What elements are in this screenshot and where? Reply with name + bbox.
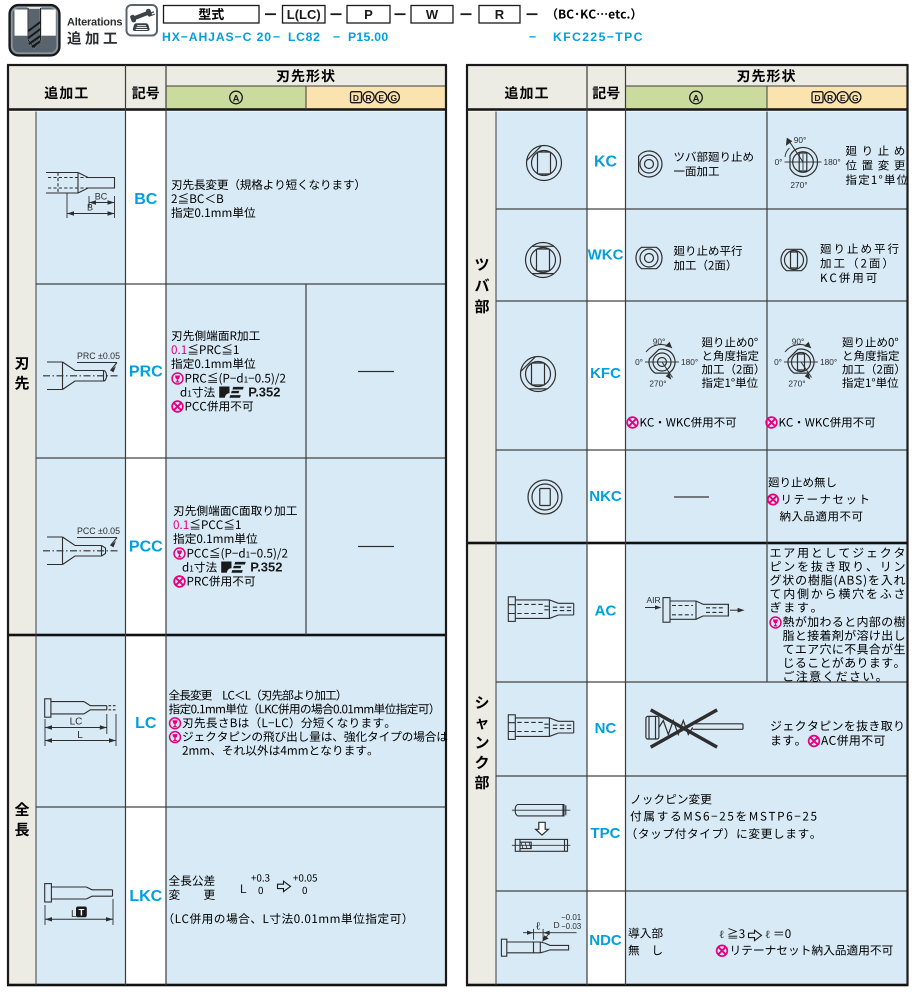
svg-text:P15.00: P15.00	[348, 30, 388, 44]
svg-text:L(LC): L(LC)	[287, 7, 321, 22]
svg-text:T: T	[78, 908, 84, 919]
svg-text:WKC: WKC	[588, 247, 624, 264]
svg-text:Alterations: Alterations	[67, 17, 122, 29]
svg-text:ℓ: ℓ	[719, 929, 724, 941]
svg-text:L: L	[240, 882, 247, 896]
svg-text:PCC ±0.05: PCC ±0.05	[77, 526, 120, 536]
svg-text:LKC: LKC	[129, 888, 162, 905]
svg-text:270°: 270°	[649, 379, 666, 389]
svg-text:AC: AC	[595, 603, 617, 620]
svg-text:G: G	[390, 93, 397, 103]
svg-text:KFC: KFC	[590, 365, 621, 382]
svg-text:A: A	[233, 94, 240, 105]
svg-text:BC: BC	[134, 191, 158, 208]
svg-text:PRC ±0.05: PRC ±0.05	[77, 351, 120, 361]
svg-text:G: G	[852, 93, 859, 103]
svg-text:W: W	[426, 7, 439, 22]
svg-text:LC: LC	[135, 715, 157, 732]
svg-text:BC: BC	[95, 192, 108, 202]
svg-text:PRC: PRC	[129, 364, 163, 381]
svg-text:R: R	[495, 7, 505, 22]
svg-text:KC: KC	[594, 154, 618, 171]
svg-text:R: R	[366, 93, 372, 103]
svg-text:−: −	[529, 30, 536, 44]
svg-text:LC82: LC82	[288, 30, 321, 44]
svg-text:E: E	[378, 93, 384, 103]
svg-text:A: A	[693, 94, 700, 105]
svg-text:P.352: P.352	[248, 385, 280, 400]
svg-text:HX−AHJAS−C 20: HX−AHJAS−C 20	[162, 30, 272, 44]
svg-text:R: R	[827, 93, 833, 103]
svg-text:−: −	[333, 30, 340, 44]
svg-text:E: E	[840, 93, 846, 103]
svg-text:D: D	[814, 93, 820, 103]
svg-text:180°: 180°	[824, 157, 841, 167]
svg-text:180°: 180°	[820, 357, 837, 367]
svg-text:−0.01: −0.01	[561, 913, 582, 922]
svg-text:KFC225−TPC: KFC225−TPC	[553, 30, 644, 44]
svg-text:P: P	[364, 7, 373, 22]
svg-text:AIR: AIR	[647, 595, 661, 605]
svg-text:ℓ: ℓ	[535, 921, 540, 933]
svg-text:TPC: TPC	[591, 825, 621, 842]
svg-text:LC: LC	[70, 717, 83, 728]
svg-text:ℓ: ℓ	[765, 929, 770, 941]
svg-text:D: D	[554, 920, 560, 930]
svg-text:D: D	[353, 93, 359, 103]
svg-text:PCC: PCC	[129, 539, 163, 556]
svg-text:180°: 180°	[681, 357, 698, 367]
svg-text:0°: 0°	[775, 157, 783, 167]
svg-text:270°: 270°	[790, 180, 807, 190]
svg-text:L: L	[77, 730, 83, 741]
svg-text:NKC: NKC	[589, 488, 622, 505]
svg-text:90°: 90°	[794, 135, 807, 145]
svg-text:0°: 0°	[635, 357, 643, 367]
svg-text:−0.03: −0.03	[561, 922, 582, 931]
svg-text:P.352: P.352	[250, 560, 282, 575]
svg-text:B: B	[87, 203, 93, 213]
svg-text:NC: NC	[595, 720, 617, 737]
svg-text:−: −	[273, 30, 280, 44]
svg-text:270°: 270°	[788, 379, 805, 389]
svg-text:0°: 0°	[774, 357, 782, 367]
svg-text:NDC: NDC	[589, 932, 622, 949]
